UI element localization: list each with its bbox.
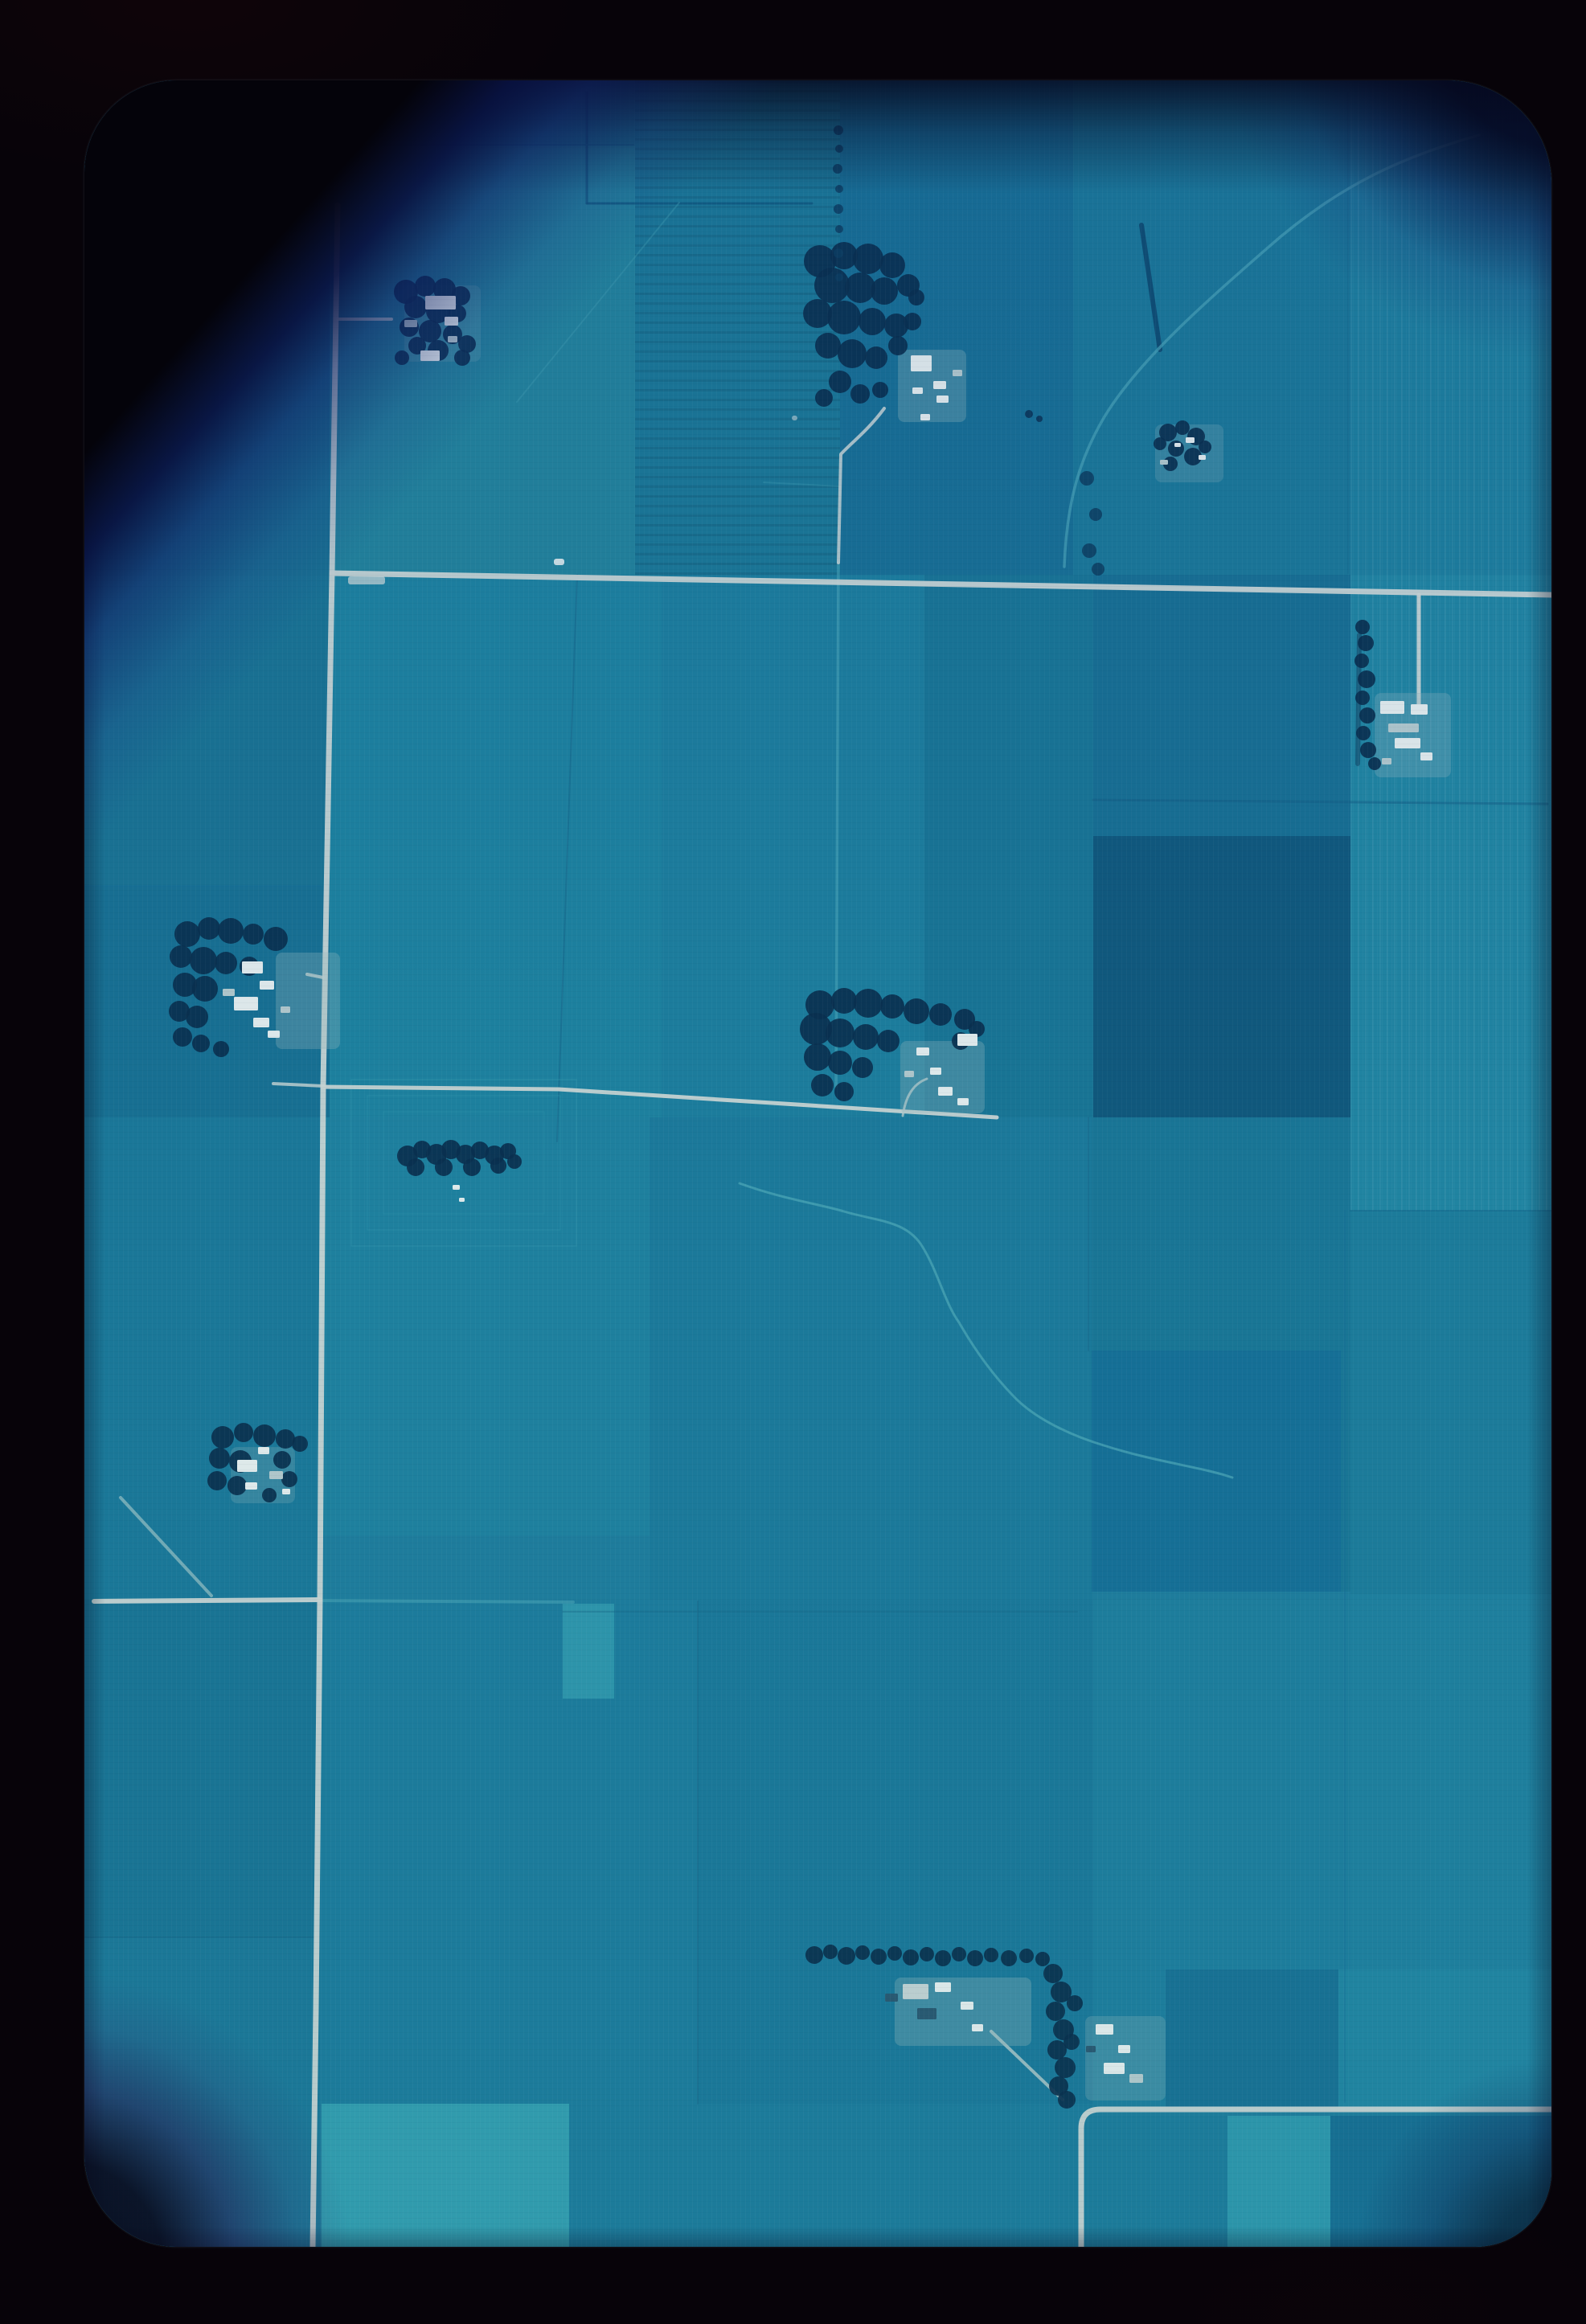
tree-canopy	[273, 1451, 291, 1469]
tree-canopy	[1001, 1950, 1017, 1966]
tree-canopy	[170, 945, 192, 968]
road-east-continuation	[320, 1601, 573, 1602]
farm-building	[938, 1087, 953, 1096]
roadside-building	[554, 559, 564, 565]
farm-building	[268, 1031, 280, 1038]
tree-canopy	[903, 1949, 919, 1965]
tree-canopy	[865, 346, 887, 369]
tree-canopy	[838, 339, 867, 368]
section-road-main-horizontal	[332, 573, 1551, 595]
tree-canopy	[829, 371, 851, 393]
tree-canopy	[395, 350, 409, 365]
tree-canopy	[814, 268, 850, 303]
farm-building	[1199, 455, 1206, 460]
farm-building	[916, 1047, 929, 1055]
section-road-sw-horizontal	[94, 1600, 320, 1601]
farm-building	[445, 317, 458, 326]
farm-building	[912, 387, 923, 394]
farm-building	[453, 1185, 460, 1190]
farm-building	[920, 414, 930, 420]
film-slide-frame	[0, 0, 1586, 2324]
tree-line-blob	[835, 273, 843, 281]
tree-canopy	[871, 1949, 887, 1965]
tree-line-blob	[835, 185, 843, 193]
aerial-photo	[84, 80, 1551, 2247]
tree-canopy	[1358, 635, 1374, 651]
tree-canopy	[490, 1158, 506, 1174]
tree-canopy	[929, 1003, 952, 1026]
tree-canopy	[854, 989, 883, 1018]
farm-building	[269, 1471, 283, 1479]
tree-canopy	[850, 384, 870, 404]
tree-canopy	[888, 336, 908, 355]
tree-canopy	[831, 988, 857, 1014]
field-boundary	[1093, 800, 1547, 804]
tree-canopy	[908, 289, 924, 305]
faint-diagonal-track	[517, 203, 679, 402]
farm-building	[1174, 443, 1181, 447]
farm-building	[245, 1482, 257, 1490]
farm-building	[1104, 2063, 1125, 2074]
tree-canopy	[935, 1950, 951, 1966]
tree-canopy	[209, 1448, 230, 1469]
curved-field-lane-ne	[1064, 135, 1479, 567]
tree-canopy	[1154, 437, 1166, 450]
tree-line-blob	[834, 204, 843, 214]
farm-building	[459, 1198, 465, 1202]
tree-canopy	[1368, 757, 1381, 770]
tree-canopy	[173, 1027, 192, 1047]
tree-line-blob	[834, 248, 843, 258]
tree-canopy	[952, 1947, 966, 1961]
farm-building	[1096, 2024, 1113, 2035]
farmyard-apron	[900, 1041, 985, 1113]
tree-canopy	[1354, 654, 1369, 668]
tree-canopy	[904, 998, 929, 1024]
tree-canopy	[815, 389, 833, 407]
farm-building	[260, 981, 274, 990]
tree-canopy	[234, 1423, 253, 1442]
farm-building	[1411, 704, 1428, 715]
tree-line-blob	[834, 125, 843, 135]
tree-canopy	[213, 1041, 229, 1057]
tree-canopy	[872, 382, 888, 398]
tree-canopy	[1046, 2002, 1065, 2021]
farm-building	[972, 2024, 983, 2031]
farm-building	[1186, 437, 1195, 443]
farm-building	[1160, 460, 1168, 465]
farm-building	[282, 1489, 290, 1494]
tree-canopy	[967, 1950, 983, 1966]
driveway-farm-north-center	[838, 408, 884, 563]
roadside-building	[792, 416, 797, 420]
farm-building	[936, 396, 949, 403]
tree-canopy	[838, 1947, 855, 1965]
farm-building	[448, 336, 457, 342]
tree-canopy	[880, 994, 904, 1019]
tree-canopy	[1063, 2034, 1080, 2050]
farm-building	[957, 1034, 977, 1046]
tree-canopy	[198, 917, 220, 940]
tree-canopy	[190, 947, 217, 974]
farmstead-northeast	[1154, 420, 1223, 482]
farm-building	[935, 1982, 951, 1992]
tree-line-blob	[1080, 471, 1094, 486]
tree-canopy	[803, 299, 832, 328]
tree-line-blob	[1092, 563, 1104, 576]
farmyard-apron	[276, 953, 340, 1049]
tree-canopy	[463, 1158, 481, 1176]
farmyard-apron	[898, 350, 966, 422]
farm-building	[242, 961, 263, 973]
tree-canopy	[1019, 1949, 1034, 1963]
farmstead-southwest	[207, 1423, 308, 1503]
tree-canopy	[852, 1057, 873, 1078]
tree-canopy	[984, 1948, 998, 1962]
field-boundary	[557, 575, 577, 1142]
tree-canopy	[211, 1426, 234, 1449]
tree-canopy	[1043, 1964, 1063, 1983]
farm-building	[1388, 723, 1419, 732]
tree-line-blob	[1089, 508, 1102, 521]
dark-spot	[1036, 416, 1043, 422]
tree-canopy	[192, 1035, 210, 1052]
farm-building	[961, 2002, 973, 2010]
farm-building	[957, 1098, 969, 1105]
tree-canopy	[186, 1006, 208, 1028]
diagonal-track-sw	[121, 1498, 211, 1596]
tree-canopy	[877, 1030, 900, 1052]
tree-canopy	[215, 952, 237, 974]
farmstead-west	[169, 917, 340, 1057]
tree-canopy	[855, 1945, 870, 1960]
tree-canopy	[1055, 2057, 1076, 2078]
farm-building	[953, 370, 962, 376]
tree-canopy	[853, 244, 883, 274]
tree-canopy	[823, 1945, 838, 1959]
farm-building	[1129, 2074, 1143, 2083]
farmstead-east	[1354, 620, 1451, 777]
tree-canopy	[826, 1019, 854, 1047]
tree-canopy	[404, 296, 427, 318]
faint-field-line	[764, 482, 840, 486]
farm-building	[253, 1018, 269, 1027]
tree-line-blob	[835, 225, 843, 233]
farm-building	[281, 1006, 290, 1013]
tree-canopy	[1355, 620, 1370, 634]
tree-canopy	[454, 350, 470, 366]
tree-canopy	[1360, 742, 1376, 758]
tree-canopy	[815, 333, 841, 359]
tree-canopy	[1356, 726, 1371, 740]
features-layer	[84, 80, 1551, 2247]
road-stub-west	[273, 1084, 323, 1086]
farm-building	[933, 381, 946, 389]
farm-building	[234, 997, 258, 1010]
farm-building	[237, 1460, 257, 1472]
section-road-west-vertical	[313, 205, 338, 2247]
farm-building	[404, 320, 417, 327]
tree-line-blob	[835, 145, 843, 153]
tree-canopy	[281, 1471, 297, 1487]
tree-canopy	[805, 1946, 823, 1964]
tree-line-blob	[1082, 543, 1096, 558]
tree-canopy	[887, 1946, 902, 1961]
tree-canopy	[859, 308, 886, 335]
tree-canopy	[262, 1488, 277, 1502]
tree-line-blob	[833, 164, 842, 174]
farm-building	[223, 989, 235, 996]
tree-canopy	[920, 1947, 934, 1961]
tree-canopy	[879, 252, 905, 278]
tree-canopy	[1355, 691, 1370, 705]
tree-canopy	[1035, 1952, 1050, 1966]
farm-building	[1086, 2046, 1096, 2052]
tree-canopy	[827, 301, 861, 334]
farm-building	[1420, 752, 1432, 760]
farm-building	[1395, 738, 1420, 748]
farm-building	[258, 1447, 269, 1454]
tree-canopy	[811, 1074, 834, 1096]
dark-spot	[1025, 410, 1033, 418]
tree-canopy	[253, 1424, 276, 1447]
tree-canopy	[871, 277, 898, 305]
tree-canopy	[845, 273, 875, 303]
farmstead-south-large	[805, 1945, 1166, 2109]
tree-canopy	[1175, 420, 1190, 435]
tree-canopy	[435, 1158, 453, 1176]
tree-canopy	[192, 976, 218, 1002]
section-road-se-corner	[1081, 2109, 1551, 2247]
tree-canopy	[1359, 707, 1375, 723]
roadside-building	[348, 576, 385, 584]
tree-canopy	[1358, 670, 1375, 688]
farm-building	[917, 2008, 936, 2019]
farm-building	[903, 1984, 928, 1999]
tree-canopy	[1067, 1995, 1083, 2011]
tree-canopy	[904, 313, 921, 330]
tree-canopy	[1058, 2091, 1076, 2109]
farmstead-center	[800, 988, 985, 1113]
tree-canopy	[207, 1471, 227, 1490]
field-boundary	[1141, 225, 1160, 350]
tree-canopy	[174, 921, 200, 947]
tree-canopy	[853, 1024, 879, 1050]
tree-canopy	[292, 1436, 308, 1452]
tree-canopy	[834, 1082, 854, 1101]
tree-canopy	[415, 276, 436, 297]
farm-building	[911, 355, 932, 371]
farm-building	[425, 296, 456, 309]
farm-building	[930, 1068, 941, 1075]
farm-building	[904, 1071, 914, 1077]
tree-canopy	[407, 1158, 424, 1176]
section-road-center-horizontal	[323, 1087, 997, 1117]
farmstead-north-center	[803, 242, 966, 422]
farm-building	[420, 350, 440, 361]
tree-grove-southwest	[397, 1140, 522, 1202]
tree-canopy	[227, 1476, 247, 1495]
tree-canopy	[1199, 441, 1211, 453]
drainage-stream	[740, 1183, 1232, 1478]
tree-canopy	[804, 1043, 831, 1071]
tree-canopy	[507, 1154, 522, 1169]
farmstead-northwest	[394, 276, 481, 366]
farm-building	[885, 1994, 898, 2002]
tree-canopy	[828, 1051, 852, 1075]
tree-canopy	[243, 924, 264, 945]
farm-building	[1382, 758, 1391, 764]
tree-canopy	[264, 927, 288, 951]
tree-canopy	[218, 918, 244, 944]
farm-building	[1380, 701, 1404, 714]
farm-building	[1118, 2045, 1130, 2053]
